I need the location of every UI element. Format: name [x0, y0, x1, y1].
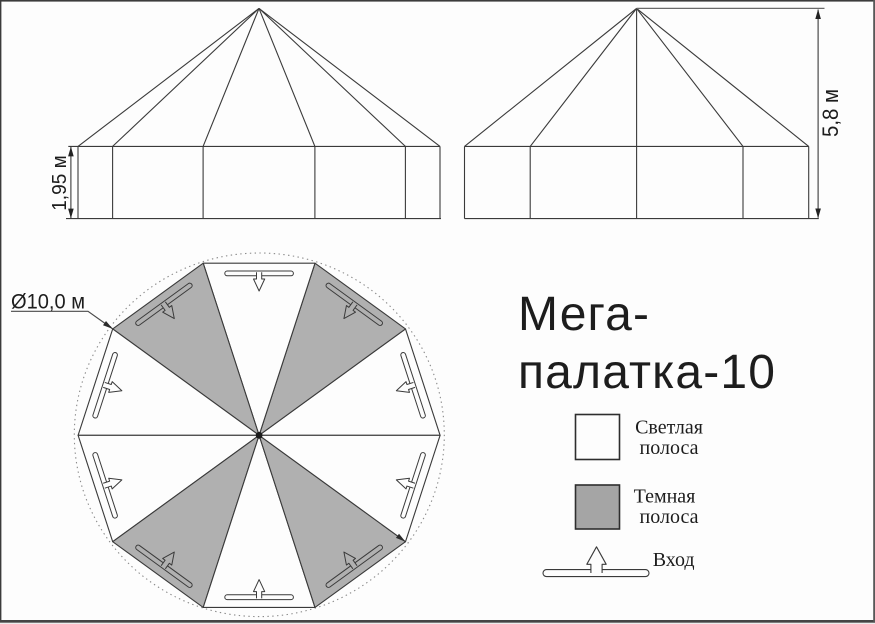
svg-text:5,8 м: 5,8 м [818, 89, 843, 137]
svg-text:1,95 м: 1,95 м [48, 155, 71, 211]
svg-text:Ø10,0 м: Ø10,0 м [11, 290, 85, 314]
svg-text:Темная: Темная [634, 486, 696, 508]
svg-text:палатка-10: палатка-10 [518, 346, 775, 399]
svg-text:полоса: полоса [640, 506, 699, 528]
svg-text:Вход: Вход [653, 549, 695, 571]
svg-text:полоса: полоса [640, 437, 699, 459]
svg-text:Мега-: Мега- [518, 288, 649, 341]
svg-text:Светлая: Светлая [635, 417, 703, 439]
